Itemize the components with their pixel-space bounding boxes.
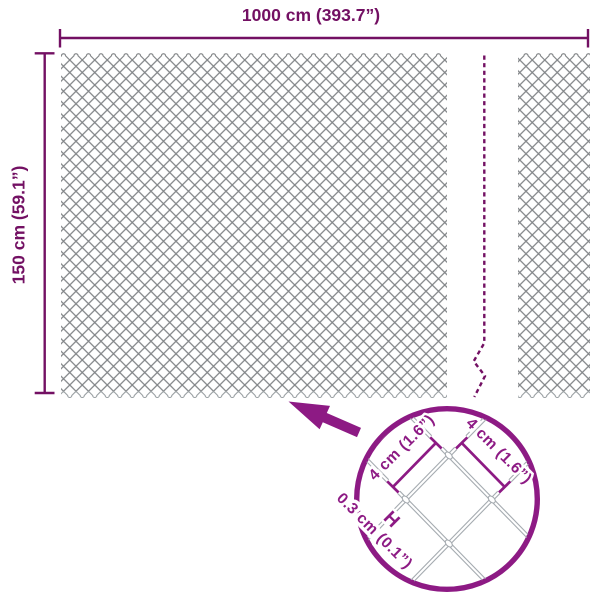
svg-text:1000 cm (393.7”): 1000 cm (393.7”) — [242, 5, 380, 25]
svg-text:150 cm (59.1”): 150 cm (59.1”) — [9, 166, 29, 285]
